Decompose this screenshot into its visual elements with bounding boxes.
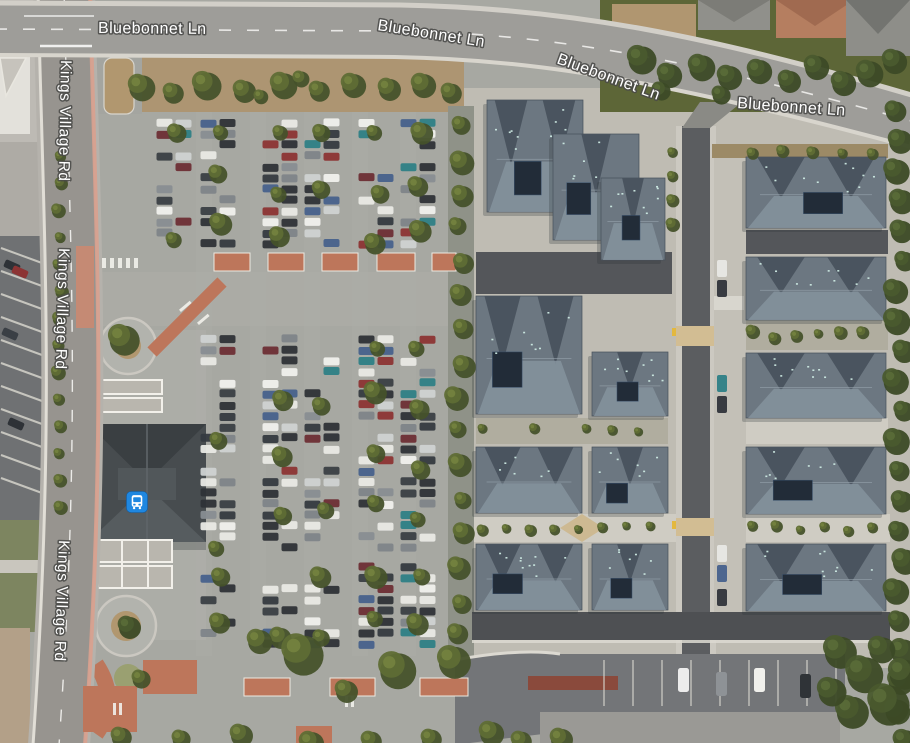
street-label-bluebonnet-1: Bluebonnet Ln: [98, 20, 207, 38]
service-driveway: [472, 612, 890, 640]
street-label-kings-village-1: Kings Village Rd: [55, 60, 74, 182]
central-drive: [682, 126, 710, 662]
map-canvas[interactable]: Bluebonnet Ln Bluebonnet Ln Bluebonnet L…: [0, 0, 910, 743]
bus-station-icon[interactable]: [127, 492, 148, 513]
south-parking-apron: [455, 652, 845, 743]
street-label-kings-village-2: Kings Village Rd: [52, 248, 72, 370]
